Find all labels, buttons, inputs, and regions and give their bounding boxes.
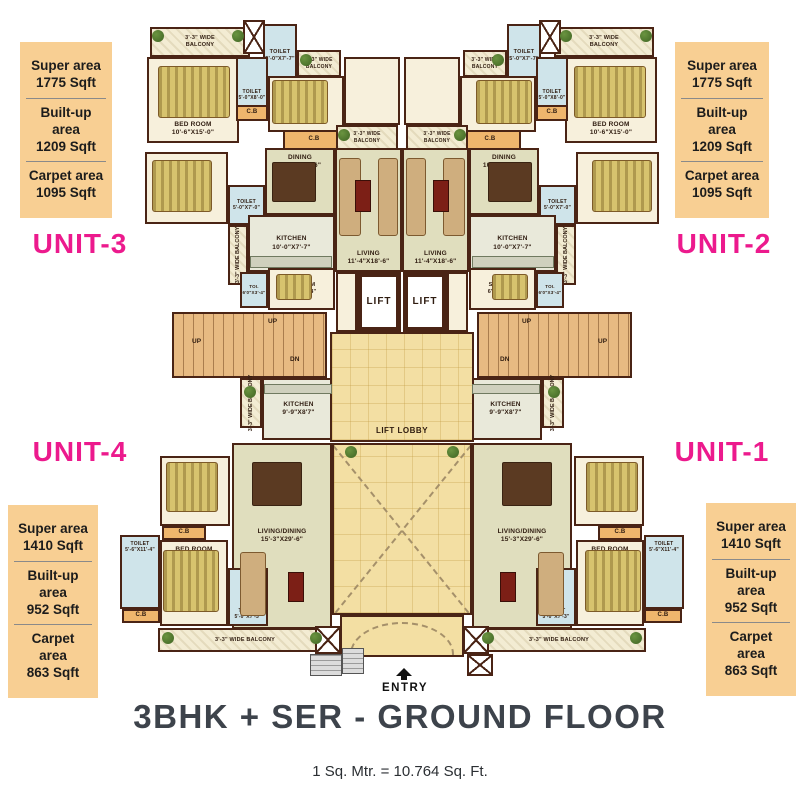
unit-2-areas: Super area1775 SqftBuilt-up area1209 Sqf… [675,42,769,218]
area-row: Carpet area1095 Sqft [681,161,763,208]
unit-3-areas: Super area1775 SqftBuilt-up area1209 Sqf… [20,42,112,218]
stair-direction-label: UP [192,338,201,345]
bed [152,160,212,212]
room-cb-3: C.B [598,526,642,540]
room-foyer [336,272,357,332]
plant-icon [345,446,357,458]
stair-direction-label: UP [598,338,607,345]
area-row: Carpet area863 Sqft [712,622,790,686]
room-toilet-side: TOILET5'-6"X11'-4" [120,535,160,609]
plant-icon [482,632,494,644]
room-cb-3: C.B [162,526,206,540]
kitchen-counter [264,384,332,394]
page-title: 3BHK + SER - GROUND FLOOR [0,698,800,736]
room-cb-1: C.B [236,105,268,121]
sofa [378,158,398,236]
bed [492,274,528,300]
room-balcony-bottom: 3'-3" WIDE BALCONY [472,628,646,652]
room-hall-top [344,57,400,125]
bed [476,80,532,124]
tv-unit [288,572,304,602]
room-foyer [447,272,468,332]
sofa [240,552,266,616]
bed [272,80,328,124]
room-toi-small: TOI.6'0"X3'-4" [536,272,564,308]
plant-icon [310,632,322,644]
entry-label: ENTRY [370,682,440,694]
plant-icon [640,30,652,42]
area-row: Carpet area1095 Sqft [26,161,106,208]
room-lift-lobby: LIFT LOBBY [330,332,474,442]
room-shaft-top [539,20,561,54]
area-row: Built-up area1209 Sqft [26,98,106,162]
room-hall-top [404,57,460,125]
plant-icon [152,30,164,42]
room-courtyard [332,443,472,615]
unit-4-areas: Super area1410 SqftBuilt-up area952 Sqft… [8,505,98,698]
room-lift: LIFT [403,272,447,332]
dining-table [252,462,302,506]
unit-label-unit-2: UNIT-2 [654,228,794,260]
kitchen-counter [472,384,540,394]
room-toilet-2: TOILET5'-0"X8'-0" [236,57,268,107]
plant-icon [300,54,312,66]
bed [586,462,638,512]
stair-direction-label: DN [290,356,299,363]
dining-table [272,162,316,202]
dining-table [488,162,532,202]
room-staircase [477,312,632,378]
area-row: Super area1775 Sqft [681,52,763,98]
area-row: Built-up area952 Sqft [712,559,790,623]
plant-icon [630,632,642,644]
room-cb-4: C.B [644,609,682,623]
room-entry-steps-2 [342,648,364,674]
room-entry-steps [310,654,342,676]
bed [585,550,641,612]
kitchen-counter [472,256,554,268]
plant-icon [447,446,459,458]
unit-label-unit-4: UNIT-4 [10,436,150,468]
tv-unit [500,572,516,602]
entry-arrow-icon [396,668,412,681]
area-row: Built-up area1209 Sqft [681,98,763,162]
bed [166,462,218,512]
plant-icon [560,30,572,42]
room-balcony-bottom: 3'-3" WIDE BALCONY [158,628,332,652]
scale-note: 1 Sq. Mtr. = 10.764 Sq. Ft. [0,763,800,780]
plant-icon [338,129,350,141]
tv-unit [433,180,449,212]
area-row: Super area1410 Sqft [712,513,790,559]
plant-icon [454,129,466,141]
room-toilet-2: TOILET5'-0"X8'-0" [536,57,568,107]
bed [158,66,230,118]
plant-icon [232,30,244,42]
room-cb-1: C.B [536,105,568,121]
room-entry-shaft-2 [467,654,493,676]
stair-direction-label: UP [268,318,277,325]
bed [163,550,219,612]
room-cb-2: C.B [459,130,521,150]
stair-direction-label: DN [500,356,509,363]
plant-icon [492,54,504,66]
area-row: Super area1775 Sqft [26,52,106,98]
kitchen-counter [250,256,332,268]
room-lift: LIFT [357,272,401,332]
bed [574,66,646,118]
room-staircase [172,312,327,378]
plant-icon [244,386,256,398]
tv-unit [355,180,371,212]
room-shaft-top [243,20,265,54]
unit-label-unit-1: UNIT-1 [652,436,792,468]
floor-plan-page: 3'-3" WIDEBALCONY3'-3" WIDEBALCONYTOILET… [0,0,800,800]
sofa [406,158,426,236]
bed [592,160,652,212]
sofa [538,552,564,616]
area-row: Built-up area952 Sqft [14,561,92,625]
area-row: Super area1410 Sqft [14,515,92,561]
room-toilet-side: TOILET5'-6"X11'-4" [644,535,684,609]
unit-1-areas: Super area1410 SqftBuilt-up area952 Sqft… [706,503,796,696]
area-row: Carpet area863 Sqft [14,624,92,688]
plant-icon [548,386,560,398]
room-cb-4: C.B [122,609,160,623]
unit-label-unit-3: UNIT-3 [10,228,150,260]
dining-table [502,462,552,506]
bed [276,274,312,300]
stair-direction-label: UP [522,318,531,325]
plant-icon [162,632,174,644]
room-toi-small: TOI.6'0"X3'-4" [240,272,268,308]
